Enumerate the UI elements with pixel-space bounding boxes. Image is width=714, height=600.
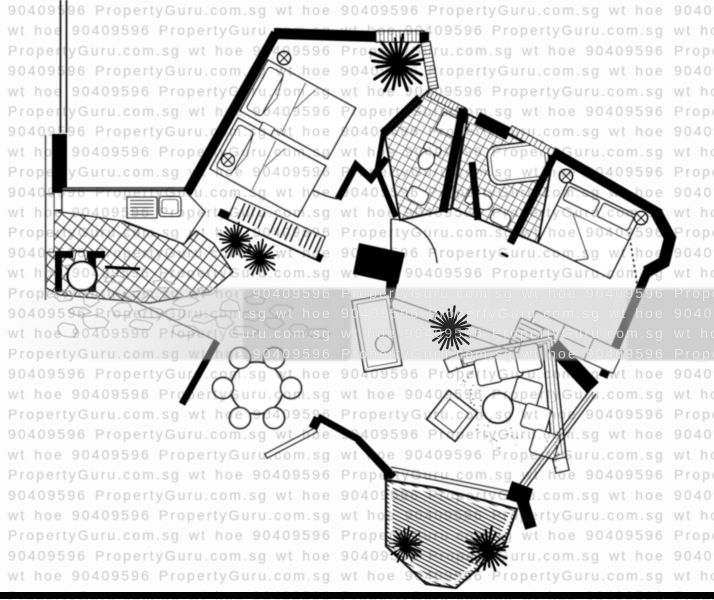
- svg-text:wt hoe 90409596 PropertyGuru.c: wt hoe 90409596 PropertyGuru.com.sgwt ho…: [7, 386, 714, 402]
- svg-text:wt hoe 90409596 PropertyGuru.c: wt hoe 90409596 PropertyGuru.com.sgwt ho…: [7, 83, 714, 99]
- svg-text:90409596 PropertyGuru.com.sg w: 90409596 PropertyGuru.com.sg wt hoe90409…: [8, 547, 714, 563]
- svg-text:wt hoe 90409596 PropertyGuru.c: wt hoe 90409596 PropertyGuru.com.sgwt ho…: [7, 446, 714, 462]
- svg-text:90409596 PropertyGuru.com.sg w: 90409596 PropertyGuru.com.sg wt hoe90409…: [8, 487, 714, 503]
- svg-text:wt hoe 90409596 PropertyGuru.c: wt hoe 90409596 PropertyGuru.com.sgwt ho…: [7, 265, 714, 281]
- svg-text:PropertyGuru.com.sg wt hoe 904: PropertyGuru.com.sg wt hoe 90409596Prope…: [8, 467, 714, 483]
- svg-text:90409596 PropertyGuru.com.sg w: 90409596 PropertyGuru.com.sg wt hoe90409…: [8, 244, 714, 260]
- svg-text:90409596 PropertyGuru.com.sg w: 90409596 PropertyGuru.com.sg wt hoe90409…: [8, 426, 714, 442]
- svg-text:wt hoe 90409596 PropertyGuru.c: wt hoe 90409596 PropertyGuru.com.sgwt ho…: [7, 204, 714, 220]
- svg-text:90409596 PropertyGuru.com.sg w: 90409596 PropertyGuru.com.sg wt hoe90409…: [8, 123, 714, 139]
- svg-text:wt hoe 90409596 PropertyGuru.c: wt hoe 90409596 PropertyGuru.com.sgwt ho…: [7, 143, 714, 159]
- svg-text:wt hoe 90409596 PropertyGuru.c: wt hoe 90409596 PropertyGuru.com.sgwt ho…: [7, 507, 714, 523]
- svg-text:PropertyGuru.com.sg wt hoe 904: PropertyGuru.com.sg wt hoe 90409596Prope…: [8, 406, 714, 422]
- svg-text:90409596 PropertyGuru.com.sg w: 90409596 PropertyGuru.com.sg wt hoe90409…: [8, 366, 714, 382]
- svg-text:PropertyGuru.com.sg wt hoe 904: PropertyGuru.com.sg wt hoe 90409596Prope…: [8, 527, 714, 543]
- svg-text:90409596 PropertyGuru.com.sg w: 90409596 PropertyGuru.com.sg wt hoe90409…: [8, 63, 714, 79]
- svg-text:90409596 PropertyGuru.com.sg w: 90409596 PropertyGuru.com.sg wt hoe90409…: [8, 2, 714, 18]
- svg-text:wt hoe 90409596 PropertyGuru.c: wt hoe 90409596 PropertyGuru.com.sgwt ho…: [7, 22, 714, 38]
- svg-text:90409596 PropertyGuru.com.sg w: 90409596 PropertyGuru.com.sg wt hoe90409…: [8, 184, 714, 200]
- svg-text:wt hoe 90409596 PropertyGuru.c: wt hoe 90409596 PropertyGuru.com.sgwt ho…: [7, 568, 714, 584]
- svg-text:PropertyGuru.com.sg wt hoe 904: PropertyGuru.com.sg wt hoe 90409596Prope…: [8, 164, 714, 180]
- svg-text:PropertyGuru.com.sg wt hoe 904: PropertyGuru.com.sg wt hoe 90409596Prope…: [8, 42, 714, 58]
- svg-text:PropertyGuru.com.sg wt hoe 904: PropertyGuru.com.sg wt hoe 90409596Prope…: [8, 224, 714, 240]
- svg-text:PropertyGuru.com.sg wt hoe 904: PropertyGuru.com.sg wt hoe 90409596Prope…: [8, 103, 714, 119]
